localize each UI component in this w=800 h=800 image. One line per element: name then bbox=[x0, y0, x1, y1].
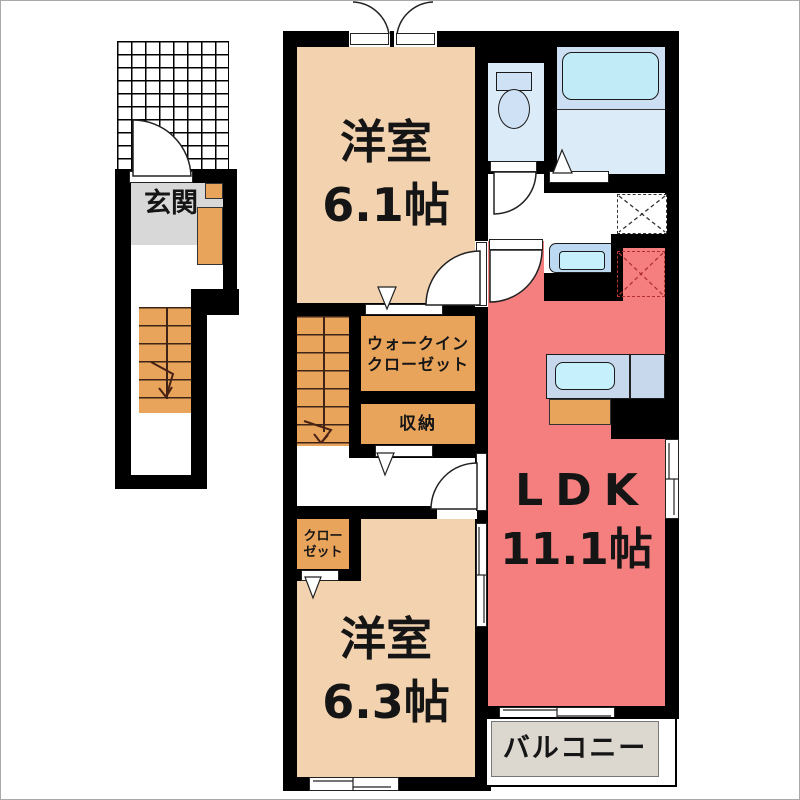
ldk-size: 11.1帖 bbox=[500, 526, 653, 574]
fridge-space bbox=[617, 251, 665, 297]
wall bbox=[349, 519, 361, 576]
stairs-interior bbox=[297, 316, 349, 446]
wall bbox=[544, 273, 623, 301]
bedroom1-name: 洋室 bbox=[340, 117, 432, 168]
door-opening bbox=[437, 507, 477, 519]
bedroom1-size: 6.1帖 bbox=[322, 180, 450, 231]
wall bbox=[544, 47, 557, 174]
bathroom-floor bbox=[557, 109, 665, 174]
door-arc-top-left bbox=[353, 2, 389, 34]
sliding-door-bedroom2-ldk bbox=[476, 523, 487, 627]
bedroom1-door-leaf bbox=[476, 242, 487, 306]
wall bbox=[611, 399, 665, 439]
wall bbox=[475, 47, 488, 777]
wall bbox=[283, 31, 679, 47]
hall-bedroom2-door-leaf bbox=[476, 453, 487, 511]
entrance-approach-tiles bbox=[117, 41, 229, 171]
bedroom2-label: 洋室 6.3帖 bbox=[297, 596, 475, 746]
kitchen-sink bbox=[555, 362, 615, 390]
bath-sliding-door bbox=[549, 171, 609, 183]
door-leaf bbox=[396, 33, 435, 45]
balcony-label-text: バルコニー bbox=[503, 734, 647, 764]
storage-label-text: 収納 bbox=[399, 415, 437, 434]
wall bbox=[191, 301, 207, 489]
bedroom2-size: 6.3帖 bbox=[322, 677, 450, 728]
wall bbox=[223, 169, 237, 301]
door-leaf bbox=[350, 33, 389, 45]
closet-label-line2: ゼット bbox=[303, 546, 342, 560]
ldk-door-leaf bbox=[489, 239, 543, 250]
kitchen-cabinet bbox=[549, 399, 611, 425]
door-center-post bbox=[390, 31, 394, 47]
entry-door-leaf bbox=[129, 171, 193, 183]
entrance-label: 玄関 bbox=[129, 187, 213, 221]
kitchen-counter-divider bbox=[629, 355, 631, 398]
wic-label-line1: ウォークイン bbox=[367, 335, 469, 353]
washer-space bbox=[617, 194, 667, 234]
stairs-entrance bbox=[139, 307, 193, 413]
toilet-bowl bbox=[498, 89, 530, 129]
wall bbox=[283, 31, 297, 791]
balcony-label: バルコニー bbox=[491, 723, 659, 775]
door-arc-bedroom2 bbox=[431, 463, 477, 509]
wall bbox=[488, 47, 544, 63]
wic-label-line2: クローゼット bbox=[367, 356, 469, 374]
wall bbox=[361, 391, 475, 404]
ldk-name: LDK bbox=[503, 467, 650, 515]
wall bbox=[349, 316, 361, 458]
bathtub bbox=[562, 52, 659, 100]
storage-door-opening bbox=[375, 445, 433, 457]
closet-door-opening bbox=[301, 570, 339, 581]
toilet-door-leaf bbox=[490, 161, 537, 172]
door-arc-top-right bbox=[397, 2, 433, 34]
closet-label: クロー ゼット bbox=[297, 523, 349, 567]
floor-plan-canvas: 玄関 洋室 6.1帖 ウォークイン クローゼット 収納 クロー ゼット 洋室 6… bbox=[0, 0, 800, 800]
window-right bbox=[665, 439, 679, 519]
wall bbox=[115, 475, 207, 489]
closet-label-line1: クロー bbox=[303, 530, 342, 544]
storage-label: 収納 bbox=[361, 405, 475, 443]
wic-label: ウォークイン クローゼット bbox=[361, 323, 475, 385]
entrance-label-text: 玄関 bbox=[144, 189, 198, 219]
washbasin-bowl bbox=[559, 251, 605, 270]
window-bedroom2 bbox=[309, 777, 399, 791]
ldk-label: LDK 11.1帖 bbox=[488, 453, 665, 588]
wall bbox=[665, 31, 679, 719]
bedroom1-label: 洋室 6.1帖 bbox=[297, 101, 475, 246]
bedroom2-name: 洋室 bbox=[340, 614, 432, 665]
wic-door-opening bbox=[365, 304, 443, 315]
